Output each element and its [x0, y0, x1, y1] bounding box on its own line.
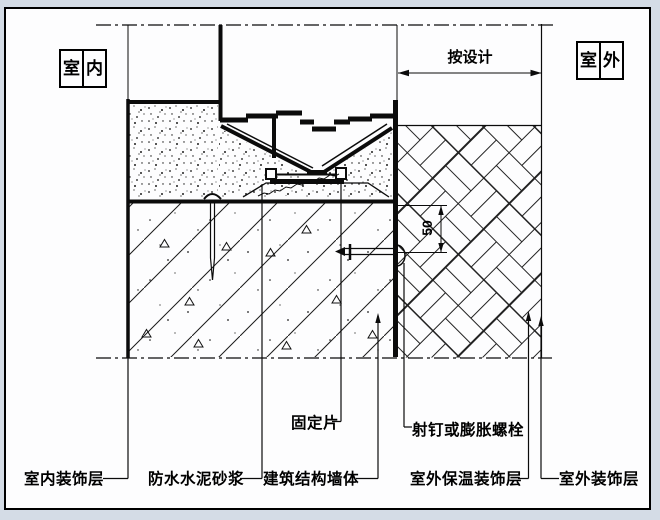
callout-exterior-insulation-finish: 室外保温装饰层	[410, 467, 522, 489]
indoor-char-2: 内	[82, 51, 105, 86]
callout-nail-or-bolt: 射钉或膨胀螺栓	[412, 418, 524, 440]
leader-interior-finish	[103, 358, 128, 479]
leader-exterior-finish	[541, 319, 559, 479]
dim-arrow-right	[531, 70, 542, 76]
design-width-dimension	[398, 70, 542, 76]
indoor-char-1: 室	[61, 51, 82, 86]
outdoor-zone-label: 室 外	[576, 41, 624, 80]
cover-plate-stepped	[220, 113, 393, 129]
indoor-zone-label: 室 内	[59, 49, 107, 88]
exterior-insulation-layer-hatch	[398, 126, 542, 358]
callout-structural-wall: 建筑结构墙体	[263, 467, 359, 489]
callout-interior-finish: 室内装饰层	[24, 467, 104, 489]
callout-waterproof-mortar: 防水水泥砂浆	[148, 467, 244, 489]
outdoor-char-2: 外	[599, 43, 622, 78]
outdoor-char-1: 室	[578, 43, 599, 78]
callout-fixing-plate: 固定片	[291, 411, 339, 433]
dim-arrow-left	[398, 70, 409, 76]
callout-exterior-finish: 室外装饰层	[559, 467, 639, 489]
drawing-canvas: 室 内 室 外 按设计 50 室内装饰层 防水水泥砂浆 建筑结构墙体 固定片 射…	[0, 0, 660, 520]
design-width-dim-text: 按设计	[442, 46, 498, 67]
edge-distance-dim-text: 50	[419, 215, 435, 241]
